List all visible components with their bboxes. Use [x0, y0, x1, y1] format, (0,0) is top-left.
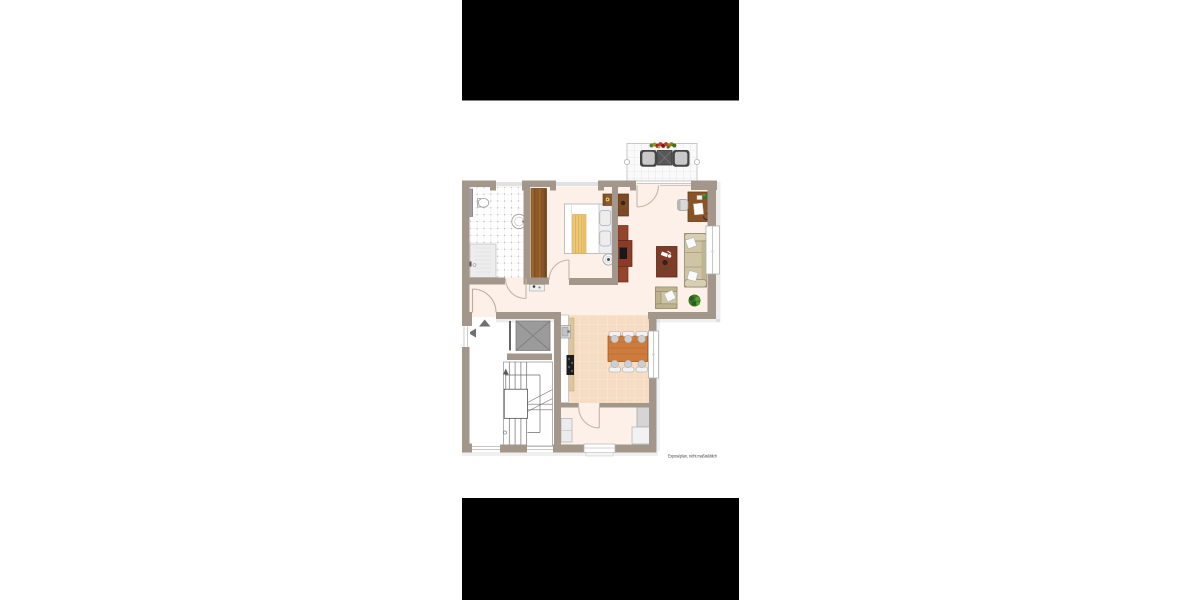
svg-text:Exposéplan, nicht maßstäblich: Exposéplan, nicht maßstäblich [668, 453, 717, 459]
